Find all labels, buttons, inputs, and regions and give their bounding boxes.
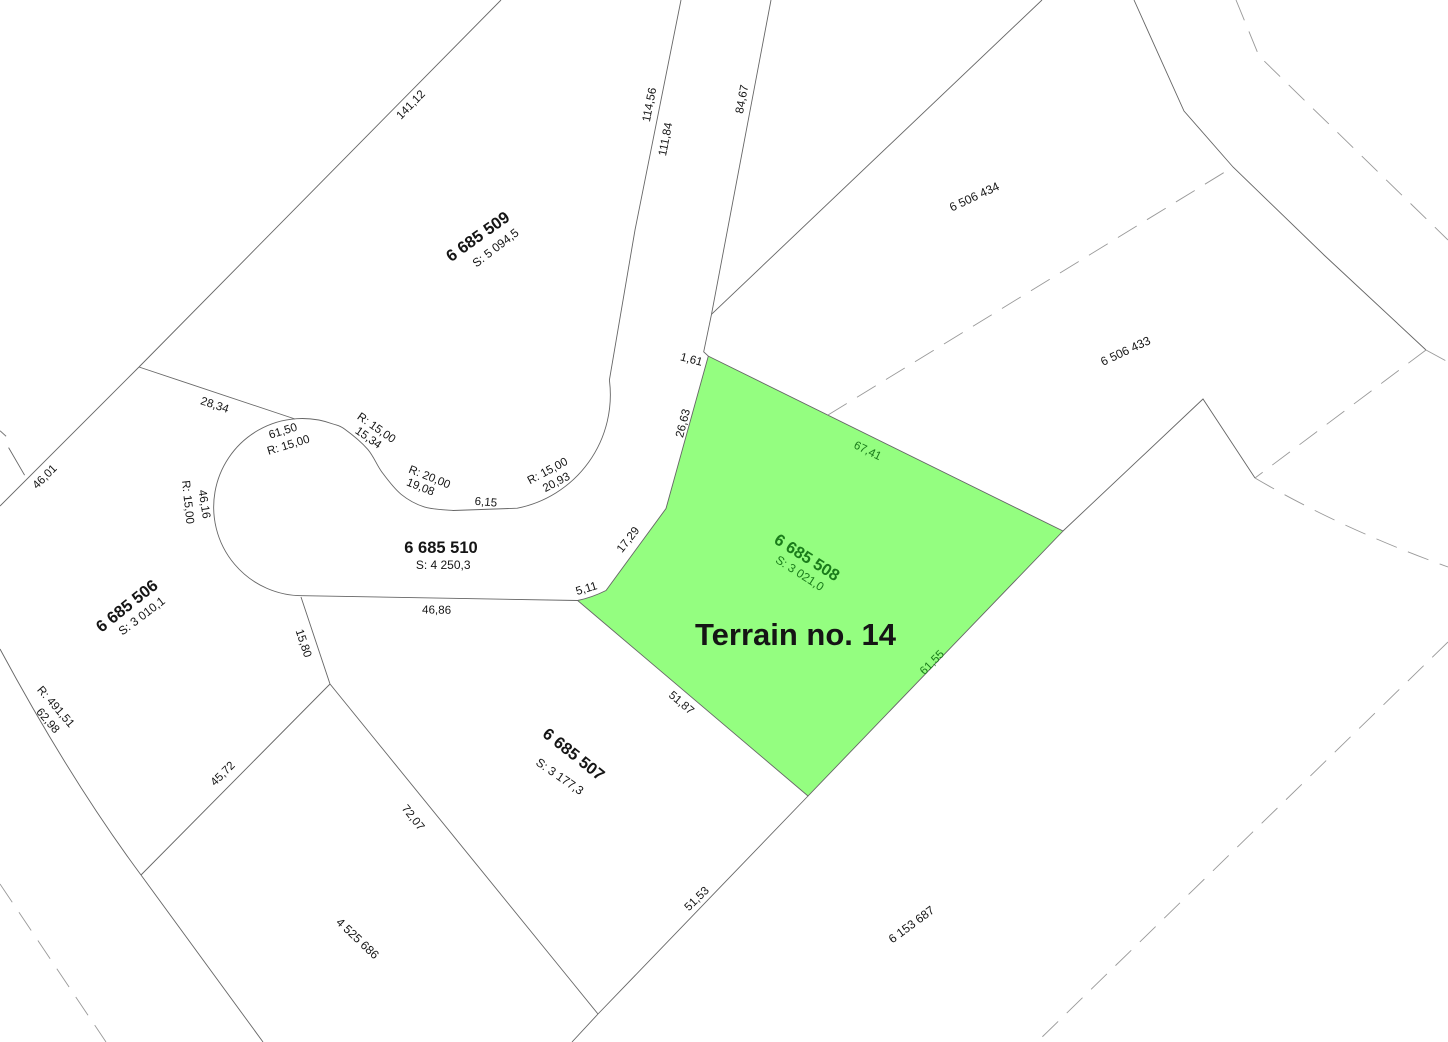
svg-text:S: 4 250,3: S: 4 250,3 [416,558,471,572]
svg-text:6 685 510: 6 685 510 [404,539,477,557]
svg-text:46,86: 46,86 [422,603,451,617]
svg-text:Terrain no. 14: Terrain no. 14 [695,617,897,652]
svg-text:6,15: 6,15 [474,495,498,510]
